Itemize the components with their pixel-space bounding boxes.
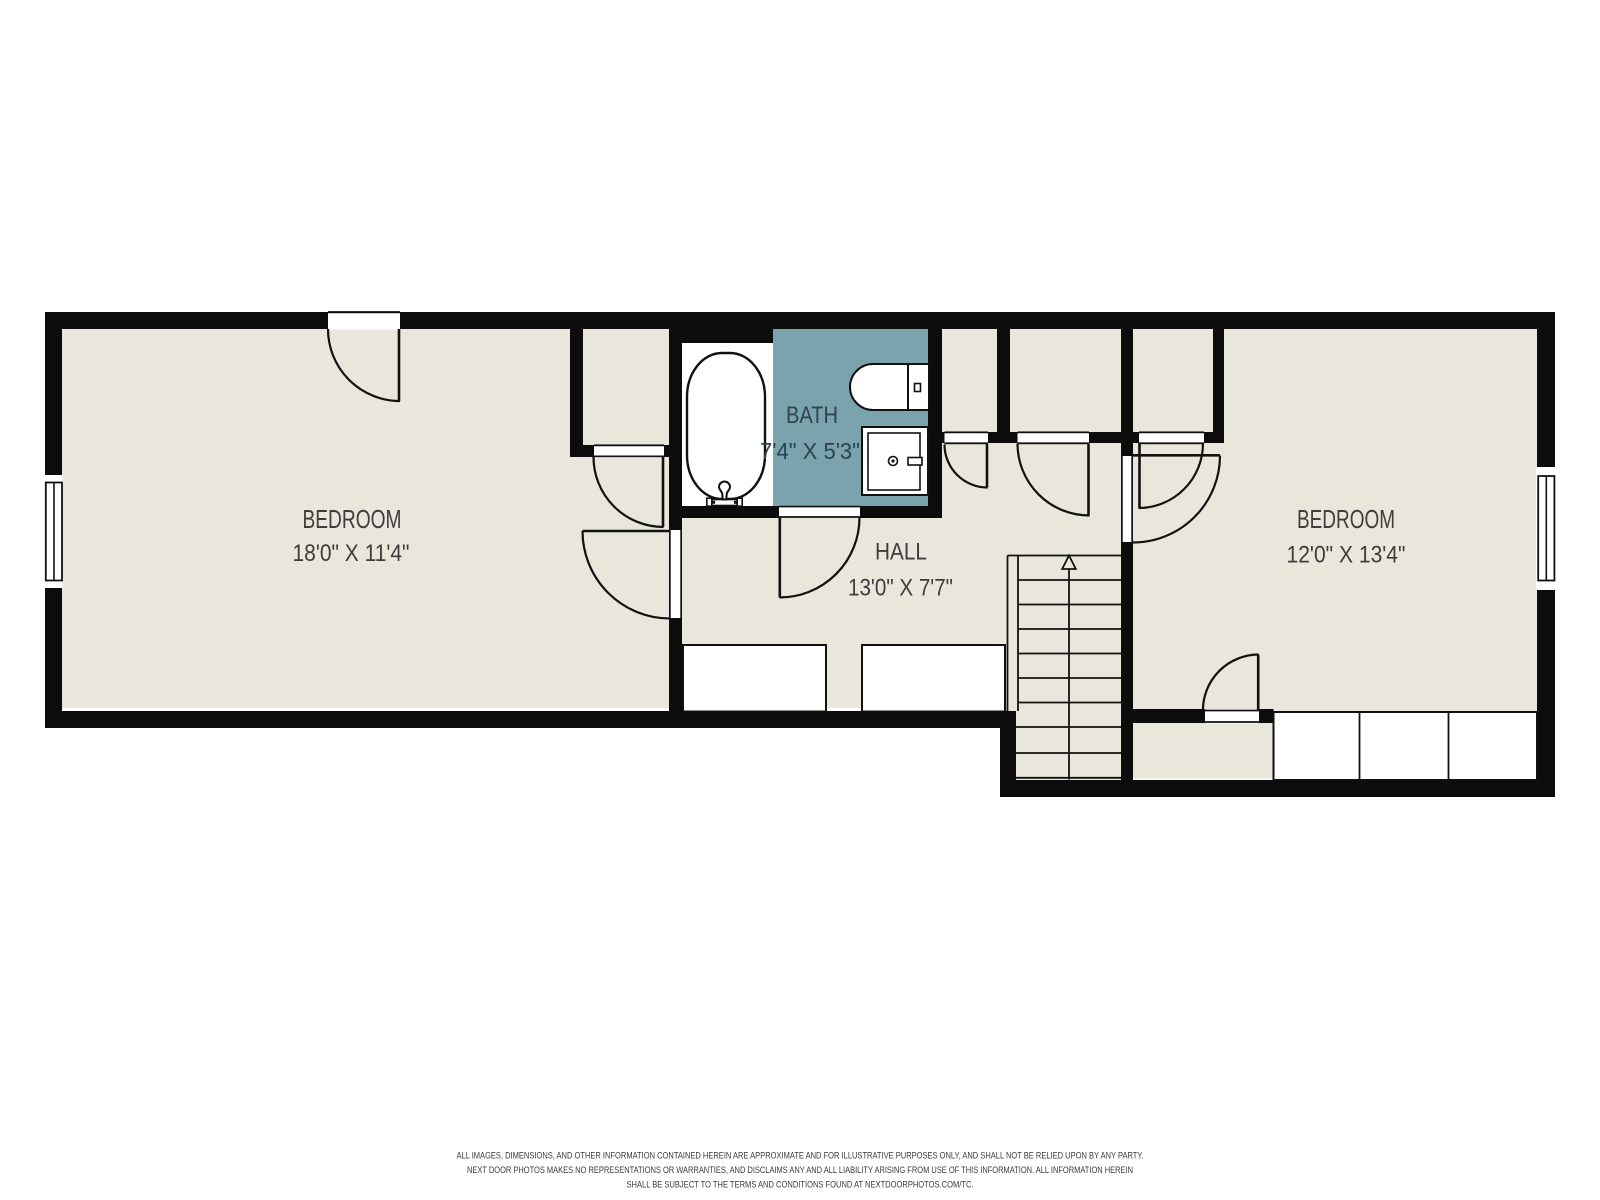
svg-text:NEXT DOOR PHOTOS MAKES NO REPR: NEXT DOOR PHOTOS MAKES NO REPRESENTATION… (467, 1165, 1133, 1175)
svg-text:SHALL BE SUBJECT TO THE TERMS: SHALL BE SUBJECT TO THE TERMS AND CONDIT… (627, 1180, 974, 1190)
svg-text:BEDROOM: BEDROOM (1297, 506, 1395, 534)
svg-text:13'0" X 7'7": 13'0" X 7'7" (848, 575, 953, 602)
svg-text:18'0" X 11'4": 18'0" X 11'4" (293, 540, 410, 567)
svg-text:7'4" X 5'3": 7'4" X 5'3" (760, 438, 860, 464)
svg-text:HALL: HALL (875, 539, 927, 566)
svg-text:BEDROOM: BEDROOM (303, 506, 402, 534)
svg-text:12'0" X 13'4": 12'0" X 13'4" (1287, 542, 1406, 569)
svg-text:ALL IMAGES, DIMENSIONS, AND OT: ALL IMAGES, DIMENSIONS, AND OTHER INFORM… (457, 1151, 1144, 1161)
svg-text:BATH: BATH (786, 402, 838, 429)
